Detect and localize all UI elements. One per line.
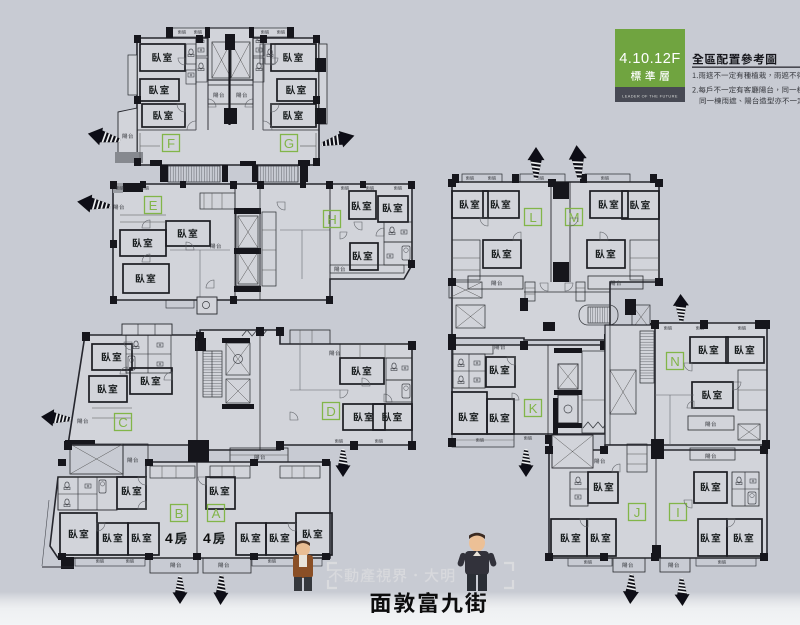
svg-text:L: L	[529, 210, 536, 225]
svg-text:I: I	[676, 505, 680, 520]
svg-text:N: N	[670, 354, 680, 369]
svg-text:A: A	[212, 506, 221, 521]
svg-text:4: 4	[203, 530, 211, 546]
svg-text:H: H	[327, 212, 337, 227]
svg-text:K: K	[529, 401, 538, 416]
svg-text:4: 4	[165, 530, 173, 546]
svg-text:G: G	[284, 136, 294, 151]
svg-text:C: C	[118, 415, 128, 430]
svg-text:LEADER OF THE FUTURE: LEADER OF THE FUTURE	[622, 94, 678, 99]
svg-text:B: B	[175, 506, 184, 521]
svg-text:F: F	[167, 136, 175, 151]
svg-text:J: J	[634, 505, 641, 520]
svg-text:4.10.12F: 4.10.12F	[619, 51, 681, 67]
svg-text:E: E	[149, 198, 158, 213]
svg-text:D: D	[326, 404, 336, 419]
